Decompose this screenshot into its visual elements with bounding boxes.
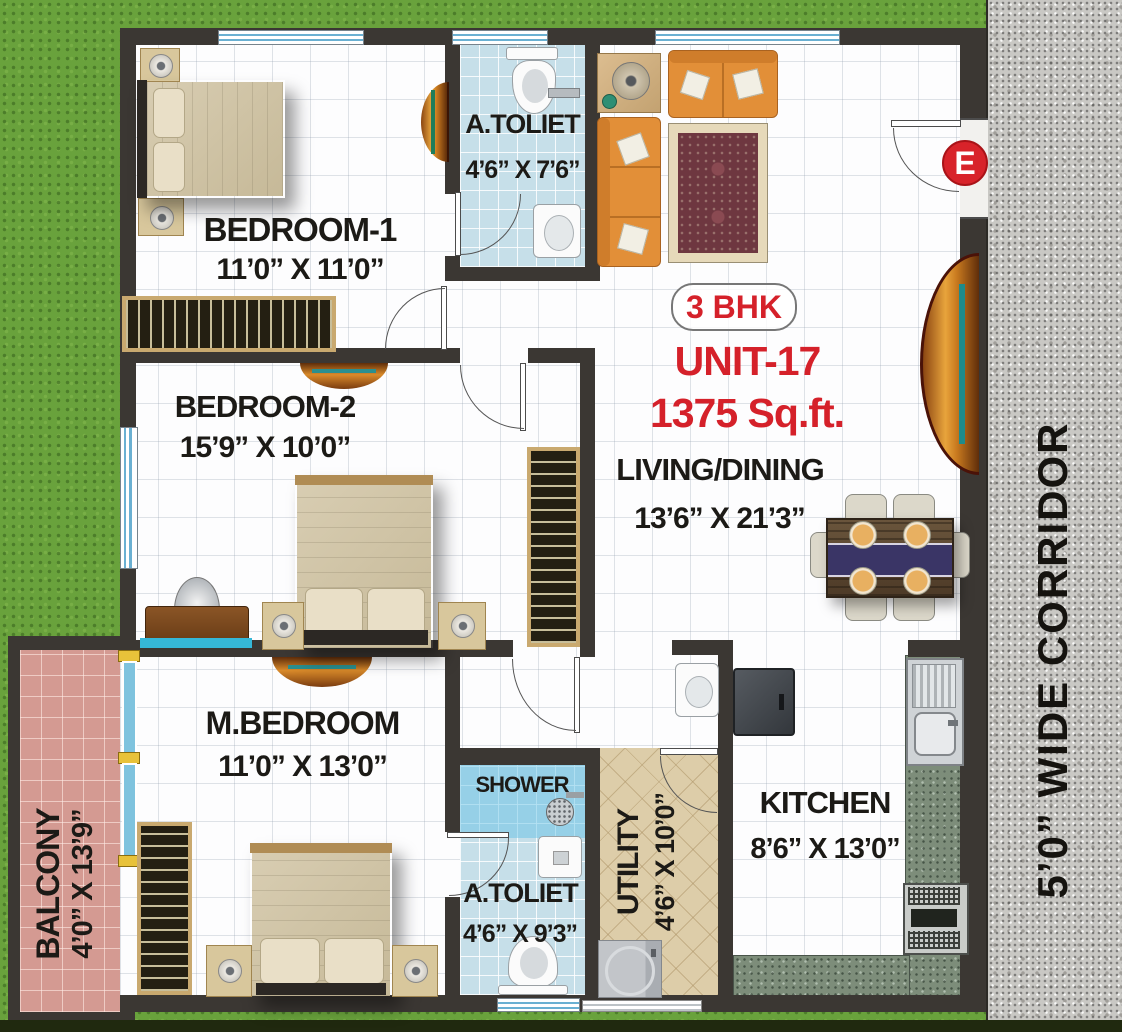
wash-basin-icon (533, 204, 581, 258)
kitchen-dims: 8’6” X 13’0” (712, 833, 938, 865)
wall-toilet1-bottom (445, 267, 600, 281)
shower-icon (546, 798, 574, 826)
plate-icon (849, 521, 877, 549)
entrance-door-leaf (891, 120, 961, 127)
bottom-edge (0, 1020, 1122, 1032)
wall-kitchen-top-right (908, 640, 988, 657)
tap-icon (548, 88, 580, 98)
fridge-icon (733, 668, 795, 736)
window-living-top (655, 30, 840, 45)
wash-basin-icon (675, 663, 719, 717)
utility-dims: 4’6” X 10’0” (648, 742, 682, 982)
floor-plan-canvas: 5’0” WIDE CORRIDOR (0, 0, 1122, 1032)
sofa-icon (597, 117, 661, 267)
stove-icon (903, 883, 969, 955)
toilet-top-dims: 4’6” X 7’6” (450, 156, 595, 184)
unit-area: 1375 Sq.ft. (617, 390, 877, 436)
side-table-icon (597, 53, 661, 113)
compass-east-badge: E (942, 140, 988, 186)
bedroom1-dims: 11’0” X 11’0” (170, 254, 430, 286)
wardrobe-icon (122, 296, 336, 352)
window-toilet-bottom (497, 998, 580, 1012)
nightstand (262, 602, 304, 650)
toilet-bottom-label: A.TOLIET (453, 878, 588, 908)
bed-icon (250, 843, 392, 996)
bedroom2-dims: 15’9” X 10’0” (150, 432, 380, 464)
dining-table-icon (826, 518, 954, 598)
plate-icon (903, 521, 931, 549)
wardrobe-icon (137, 822, 192, 995)
living-label: LIVING/DINING (600, 452, 840, 488)
toilet-base (498, 985, 568, 995)
balcony-slider-pane-2 (122, 763, 137, 857)
living-dims: 13’6” X 21’3” (612, 502, 827, 536)
window-toilet-top (452, 30, 548, 45)
compass-east-letter: E (944, 142, 986, 184)
shower-label: SHOWER (462, 772, 582, 798)
mbedroom-dims: 11’0” X 13’0” (190, 750, 415, 784)
kitchen-label: KITCHEN (725, 785, 925, 821)
wall-toilet2-top (445, 748, 595, 765)
wardrobe-icon (527, 447, 580, 647)
utility-label-block: UTILITY 4’6” X 10’0” (610, 742, 686, 982)
wall-toilet2-left-a (445, 765, 460, 832)
window-bedroom1-top (218, 30, 364, 45)
wall-b1-b2-b (528, 348, 595, 363)
toilet-bottom-dims: 4’6” X 9’3” (450, 920, 590, 948)
wall-kitchen-nook (672, 640, 718, 655)
utility-label: UTILITY (610, 742, 648, 982)
kitchen-sink-icon (906, 658, 964, 766)
sofa-icon (668, 50, 778, 118)
wall-b2-right (580, 363, 595, 657)
toilet-icon (506, 47, 558, 60)
toilet-top-label: A.TOLIET (455, 110, 590, 138)
plate-icon (903, 567, 931, 595)
carpet-icon (668, 123, 768, 263)
window-utility-bottom (582, 1000, 702, 1012)
dressing-table-mat (140, 638, 252, 648)
nightstand (206, 945, 252, 997)
nightstand (438, 602, 486, 650)
bed-icon (137, 80, 285, 198)
nightstand (140, 48, 180, 82)
unit-type-badge: 3 BHK (671, 283, 797, 331)
bedroom1-label: BEDROOM-1 (170, 212, 430, 248)
plate-icon (849, 567, 877, 595)
bedroom2-label: BEDROOM-2 (150, 390, 380, 424)
balcony-label: BALCONY (30, 739, 66, 1029)
corridor-label: 5’0” WIDE CORRIDOR (1027, 320, 1079, 1000)
geyser-icon (538, 836, 582, 878)
balcony-dims: 4’0” X 13’9” (66, 739, 100, 1029)
balcony-slider-pane-1 (122, 661, 137, 755)
window-bedroom2-left (120, 427, 138, 569)
nightstand (392, 945, 438, 997)
bed-icon (295, 475, 433, 648)
unit-number: UNIT-17 (640, 338, 855, 384)
mbedroom-label: M.BEDROOM (185, 705, 420, 741)
balcony-label-block: BALCONY 4’0” X 13’9” (30, 739, 102, 1029)
dressing-table-icon (145, 606, 249, 642)
kitchen-counter-bottom (733, 955, 910, 997)
